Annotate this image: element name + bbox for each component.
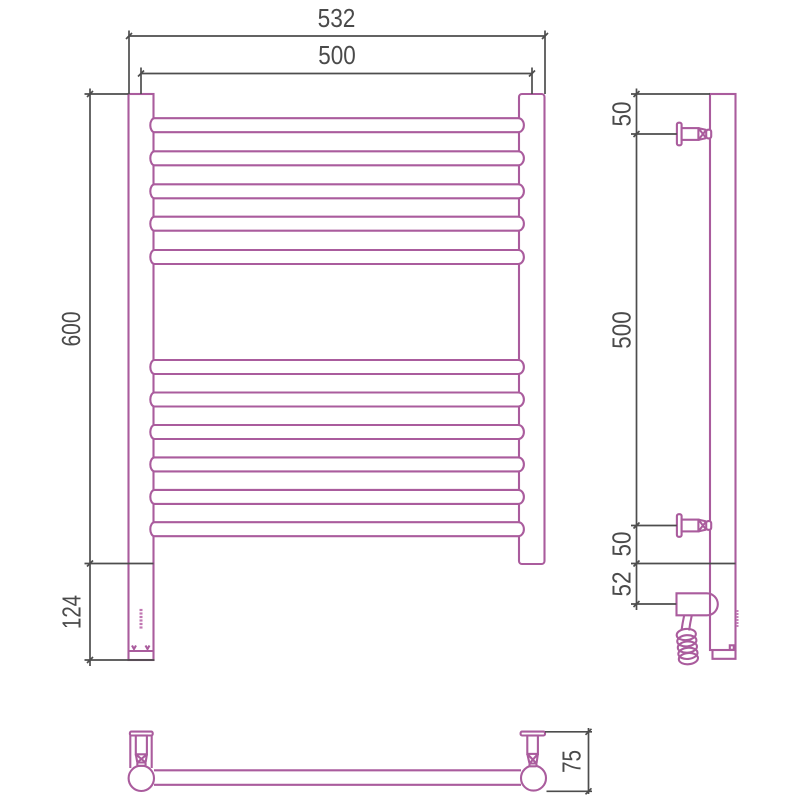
svg-text:500: 500 — [607, 311, 637, 349]
svg-text:50: 50 — [607, 532, 637, 557]
svg-text:52: 52 — [607, 572, 637, 597]
svg-text:532: 532 — [318, 3, 356, 33]
svg-text:600: 600 — [56, 312, 86, 347]
svg-text:500: 500 — [318, 40, 356, 70]
svg-text:75: 75 — [557, 750, 587, 773]
svg-text:124: 124 — [57, 595, 87, 629]
svg-text:50: 50 — [607, 102, 637, 127]
